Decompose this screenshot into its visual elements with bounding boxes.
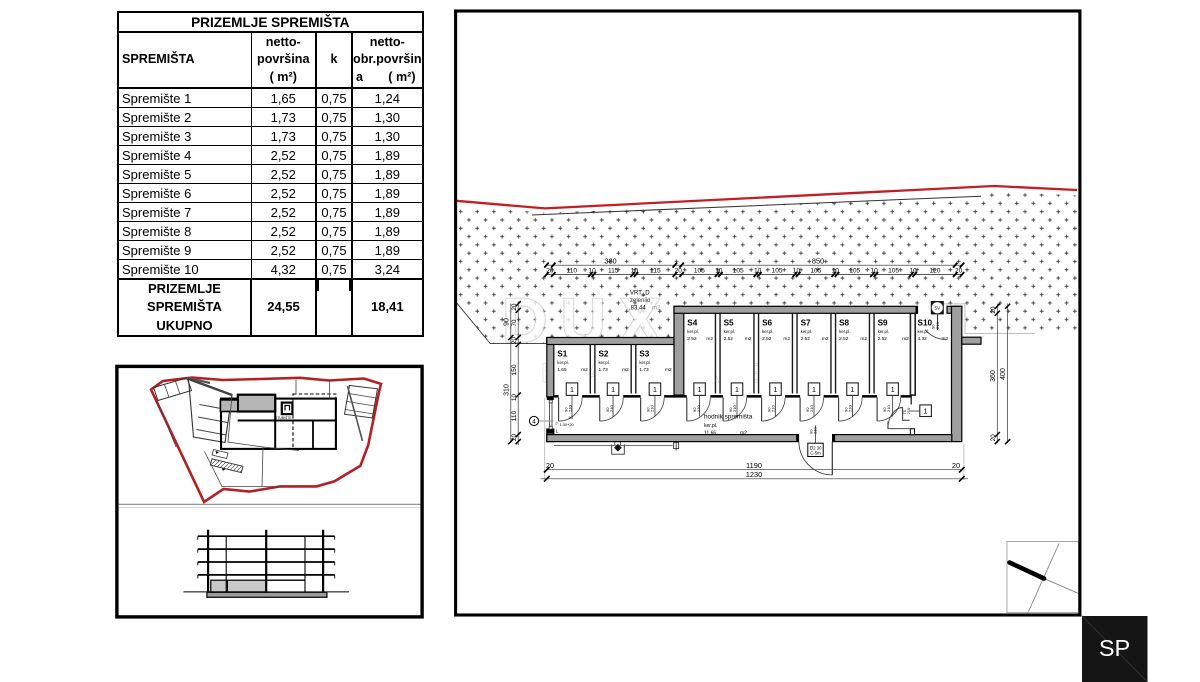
svg-text:1: 1 [570,387,574,394]
svg-text:10: 10 [588,268,596,275]
svg-text:STUBIŠTE: STUBIŠTE [275,415,292,420]
svg-text:90: 90 [569,415,574,420]
svg-text:C-5m: C-5m [810,451,821,456]
svg-text:m2: m2 [783,336,790,342]
svg-text:S3: S3 [639,350,649,359]
svg-text:105: 105 [733,268,744,275]
svg-text:110: 110 [511,410,518,421]
svg-text:VRT_D: VRT_D [630,291,650,297]
svg-text:850: 850 [812,256,824,265]
svg-text:20: 20 [952,461,960,470]
svg-text:20: 20 [990,434,997,441]
svg-text:1: 1 [611,387,615,394]
svg-text:ker.pl.: ker.pl. [878,329,889,334]
svg-text:ker.pl.: ker.pl. [724,329,735,334]
svg-text:1: 1 [924,408,928,415]
svg-text:10: 10 [631,268,639,275]
svg-text:m2: m2 [902,336,909,342]
svg-text:ker.pl.: ker.pl. [918,329,929,334]
svg-text:m2: m2 [652,306,661,312]
svg-text:ker.pl.: ker.pl. [557,360,568,365]
svg-text:S6: S6 [762,318,772,327]
svg-text:1.65: 1.65 [557,367,567,373]
svg-text:S7: S7 [801,318,811,327]
svg-text:210: 210 [906,407,911,414]
svg-text:m2: m2 [706,336,713,342]
svg-text:1190: 1190 [746,461,762,470]
svg-text:S1: S1 [557,350,567,359]
svg-text:m2: m2 [745,336,752,342]
svg-text:360: 360 [990,370,997,382]
svg-text:m2: m2 [665,367,672,373]
svg-text:120: 120 [929,268,940,275]
svg-text:10: 10 [715,268,723,275]
svg-text:1: 1 [774,387,778,394]
svg-text:2.52: 2.52 [839,336,849,342]
svg-text:2.52: 2.52 [724,336,734,342]
svg-text:hodnik spremišta: hodnik spremišta [704,414,753,421]
svg-text:1230: 1230 [746,470,762,479]
svg-text:10: 10 [870,268,878,275]
svg-text:1: 1 [653,387,657,394]
svg-text:20: 20 [955,268,963,275]
svg-text:SV: SV [934,306,940,311]
svg-text:1.73: 1.73 [639,367,649,373]
svg-text:115: 115 [650,268,661,275]
svg-text:1: 1 [891,387,895,394]
svg-text:210: 210 [813,427,818,434]
svg-text:SP: SP [1099,635,1130,661]
svg-text:20: 20 [511,303,518,310]
svg-text:20: 20 [990,306,997,313]
svg-text:,83.44: ,83.44 [629,306,646,312]
svg-text:zelenilo: zelenilo [630,298,651,304]
svg-text:10: 10 [793,268,801,275]
svg-text:ker.pl.: ker.pl. [598,360,609,365]
svg-text:20: 20 [675,268,683,275]
svg-text:m2: m2 [581,367,588,373]
svg-text:105: 105 [888,268,899,275]
svg-text:10: 10 [909,268,917,275]
svg-text:115: 115 [608,268,619,275]
svg-text:10: 10 [832,268,840,275]
svg-text:1: 1 [812,387,816,394]
svg-text:2.52: 2.52 [762,336,772,342]
svg-text:ker.pl.: ker.pl. [639,360,650,365]
svg-text:20: 20 [511,337,518,344]
svg-text:2.52: 2.52 [687,336,697,342]
svg-text:110: 110 [567,268,578,275]
svg-text:105: 105 [772,268,783,275]
svg-text:ker.pl.: ker.pl. [704,423,717,429]
svg-text:210: 210 [935,322,940,329]
svg-text:1.30+20: 1.30+20 [560,422,575,427]
svg-text:1: 1 [735,387,739,394]
svg-text:380: 380 [604,256,616,265]
svg-text:1.73: 1.73 [598,367,608,373]
svg-text:2.52: 2.52 [878,336,888,342]
svg-text:4: 4 [532,418,536,425]
svg-text:150: 150 [511,364,518,375]
svg-text:S5: S5 [724,318,734,327]
svg-text:105: 105 [694,268,705,275]
svg-text:ker.pl.: ker.pl. [762,329,773,334]
svg-text:m2: m2 [822,336,829,342]
svg-text:10: 10 [754,268,762,275]
svg-text:20: 20 [546,268,554,275]
svg-text:20: 20 [546,461,554,470]
svg-text:S8: S8 [839,318,849,327]
svg-text:20: 20 [511,434,518,441]
svg-text:ker.pl.: ker.pl. [839,329,850,334]
svg-text:1: 1 [698,387,702,394]
svg-text:2.52: 2.52 [801,336,811,342]
svg-text:S4: S4 [687,318,697,327]
svg-text:ker.pl.: ker.pl. [801,329,812,334]
svg-text:10: 10 [511,394,518,401]
svg-text:90: 90 [503,318,510,326]
svg-text:310: 310 [503,384,510,396]
svg-text:1: 1 [851,387,855,394]
svg-text:m2: m2 [860,336,867,342]
svg-text:S2: S2 [598,350,608,359]
svg-text:m2: m2 [622,367,629,373]
svg-text:ker.pl.: ker.pl. [687,329,698,334]
svg-text:105: 105 [849,268,860,275]
svg-text:105: 105 [810,268,821,275]
svg-text:70: 70 [511,319,518,326]
svg-text:400: 400 [1000,368,1007,380]
svg-text:S9: S9 [878,318,888,327]
svg-text:4.32: 4.32 [918,336,928,342]
